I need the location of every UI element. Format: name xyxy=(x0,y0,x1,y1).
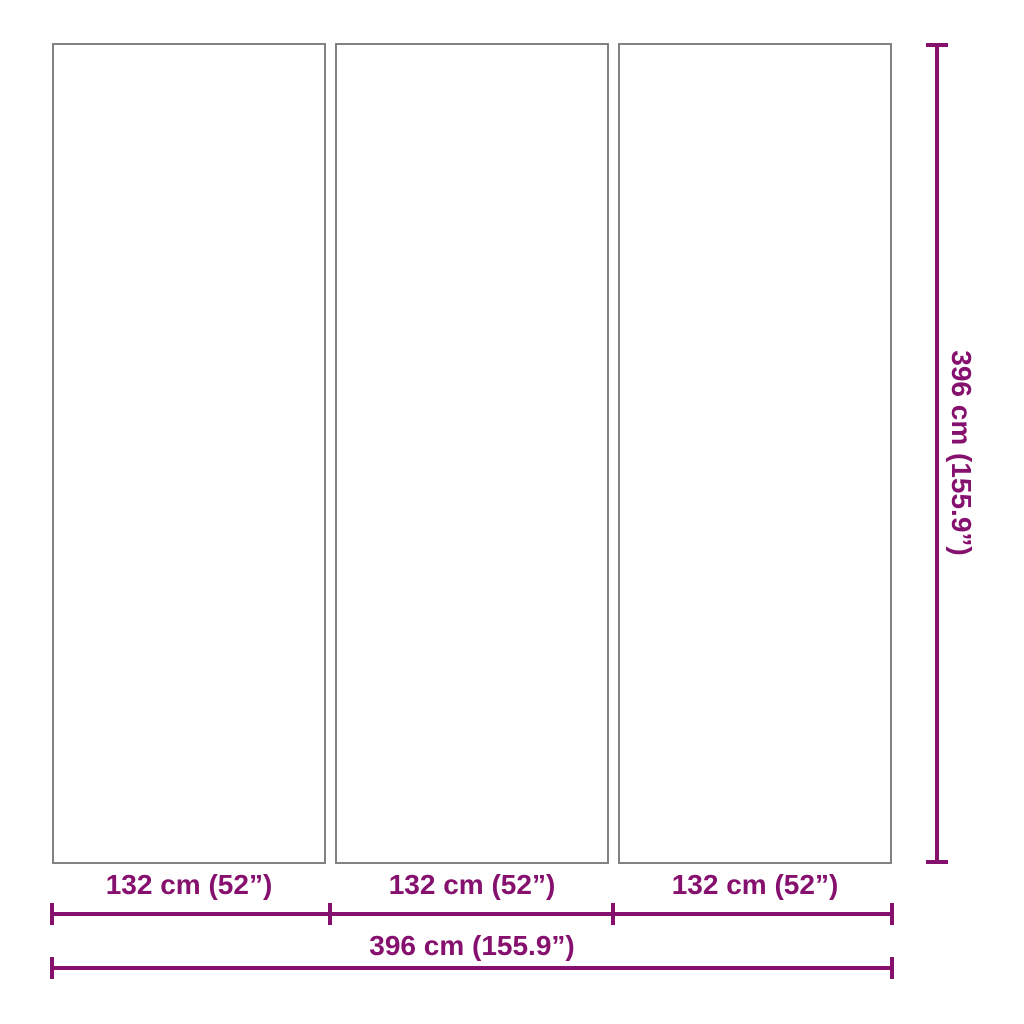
panel-width-label-left: 132 cm (52”) xyxy=(106,870,273,900)
height-tick-top xyxy=(926,43,948,47)
panel-middle xyxy=(335,43,609,864)
panel-right xyxy=(618,43,892,864)
height-tick-bottom xyxy=(926,860,948,864)
total-width-dimension-line xyxy=(50,966,894,970)
segment-width-dimension-line xyxy=(50,912,894,916)
total-width-tick-end xyxy=(890,957,894,979)
panel-width-label-middle: 132 cm (52”) xyxy=(389,870,556,900)
panel-left xyxy=(52,43,326,864)
height-label: 396 cm (155.9”) xyxy=(946,350,976,555)
total-width-tick-start xyxy=(50,957,54,979)
segment-tick-second-divider xyxy=(611,903,615,925)
panel-width-label-right: 132 cm (52”) xyxy=(672,870,839,900)
segment-tick-start xyxy=(50,903,54,925)
total-width-label: 396 cm (155.9”) xyxy=(369,931,574,961)
segment-tick-end xyxy=(890,903,894,925)
dimension-diagram: 132 cm (52”) 132 cm (52”) 132 cm (52”) 3… xyxy=(0,0,1024,1024)
segment-tick-first-divider xyxy=(328,903,332,925)
height-dimension-line xyxy=(935,43,939,864)
